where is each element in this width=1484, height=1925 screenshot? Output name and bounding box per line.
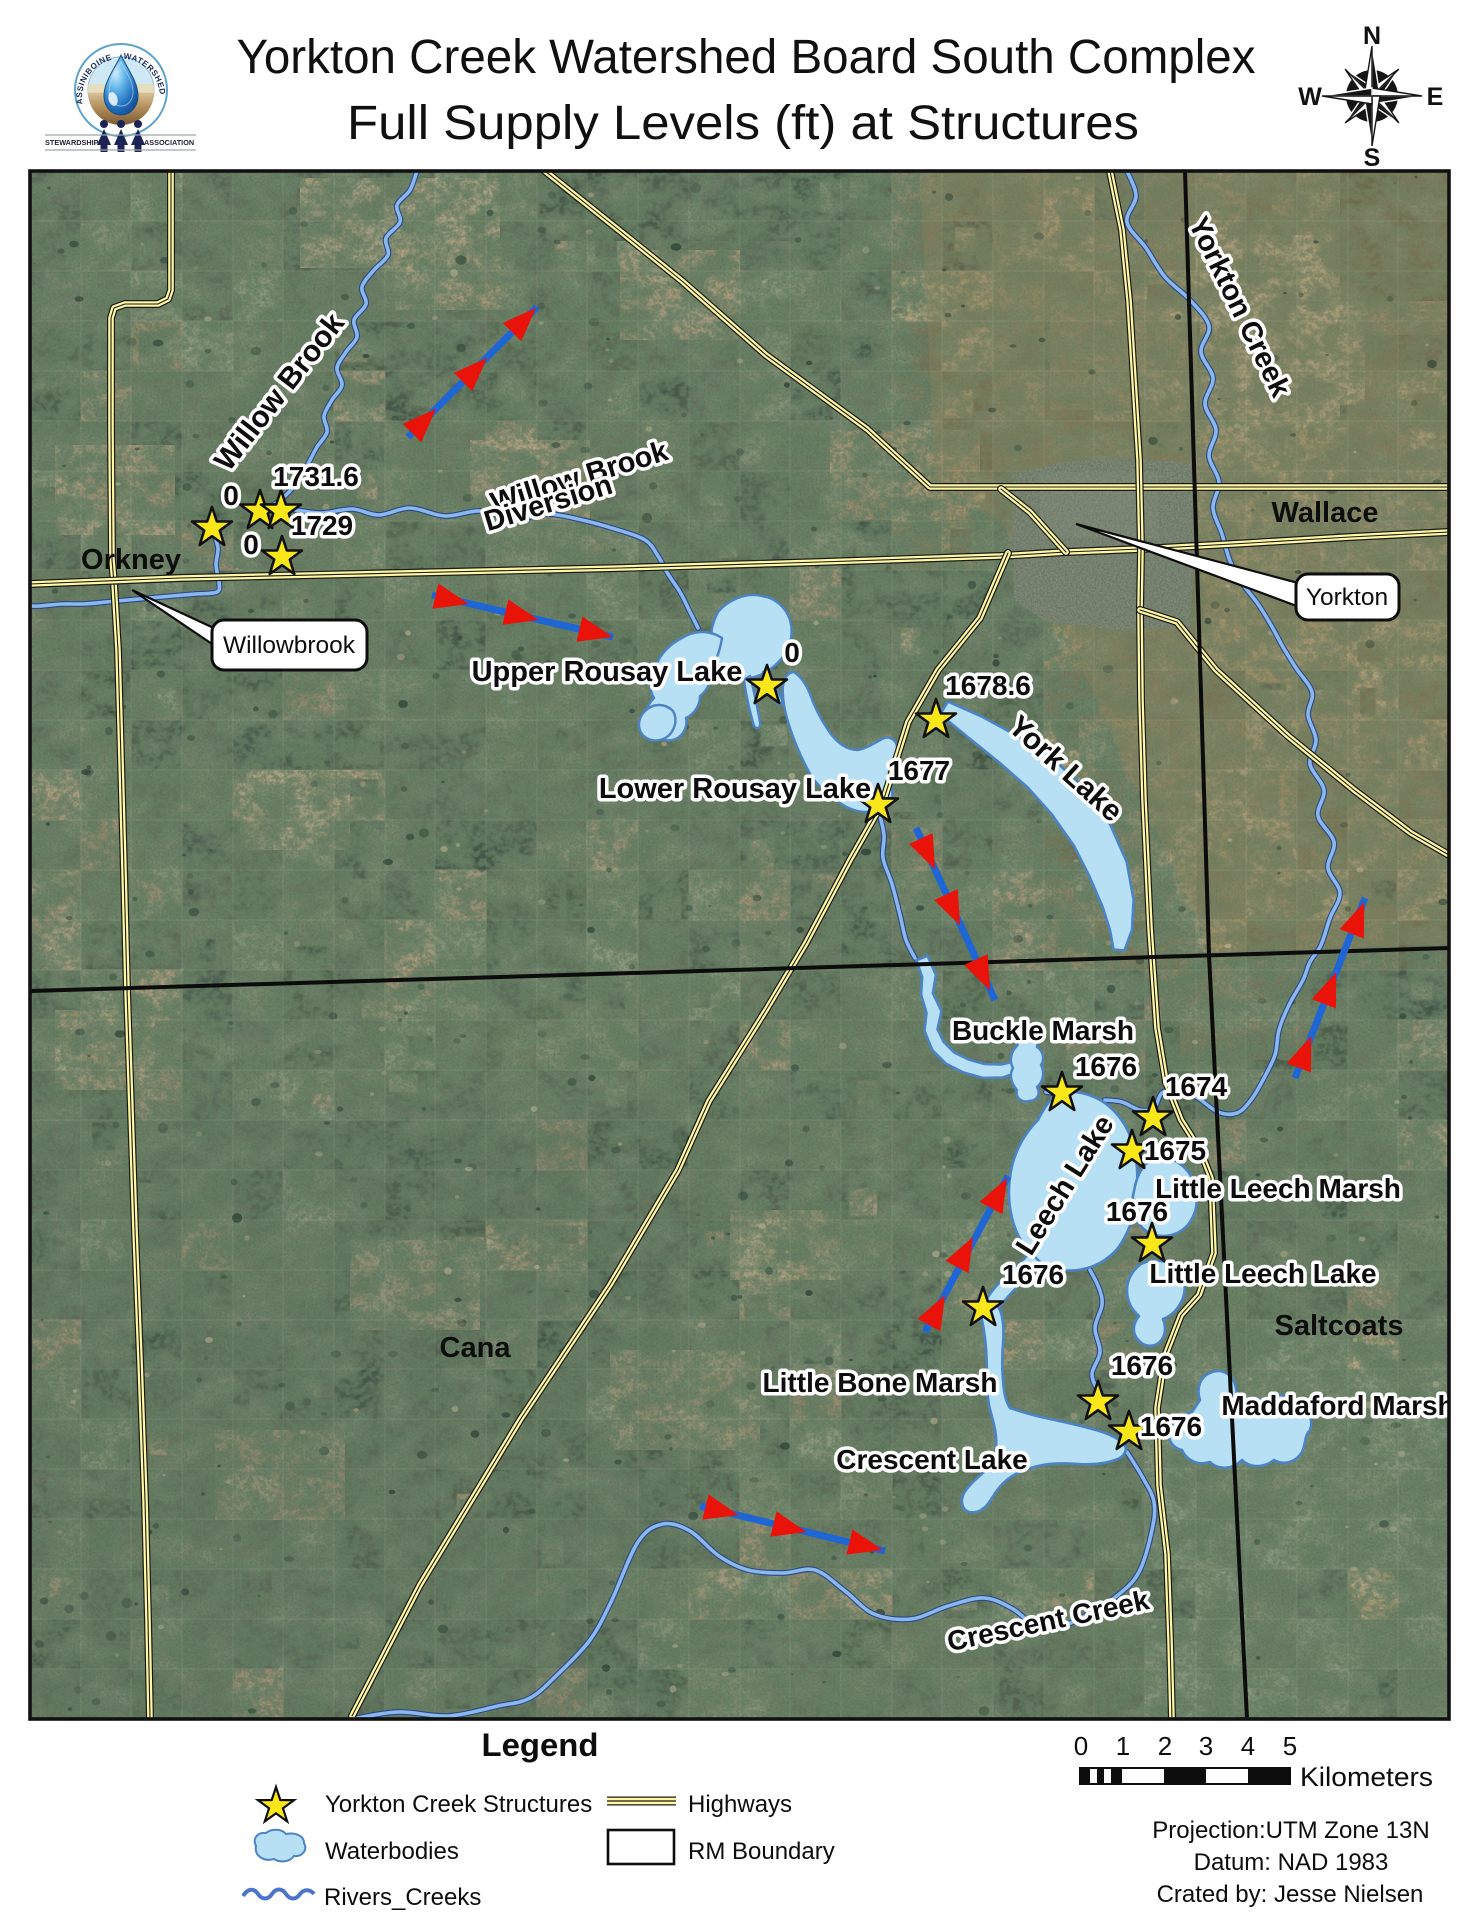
- svg-text:Wallace: Wallace: [1272, 497, 1379, 529]
- svg-text:Yorkton: Yorkton: [1306, 584, 1388, 611]
- svg-text:1676: 1676: [1106, 1196, 1168, 1227]
- svg-text:1674: 1674: [1165, 1071, 1228, 1102]
- svg-text:0: 0: [1074, 1731, 1088, 1761]
- svg-text:1731.6: 1731.6: [273, 461, 359, 492]
- svg-text:1675: 1675: [1144, 1135, 1206, 1166]
- svg-text:Full Supply Levels (ft) at Str: Full Supply Levels (ft) at Structures: [347, 97, 1139, 150]
- svg-text:Buckle Marsh: Buckle Marsh: [952, 1015, 1134, 1046]
- svg-text:Cana: Cana: [440, 1332, 512, 1364]
- svg-text:3: 3: [1199, 1731, 1213, 1761]
- svg-text:1: 1: [1116, 1731, 1130, 1761]
- svg-text:Little Bone Marsh: Little Bone Marsh: [763, 1367, 998, 1398]
- svg-text:5: 5: [1283, 1731, 1297, 1761]
- svg-text:1677: 1677: [888, 755, 950, 786]
- svg-text:0: 0: [784, 637, 800, 668]
- svg-text:1676: 1676: [1111, 1350, 1173, 1381]
- svg-text:ASSOCIATION: ASSOCIATION: [144, 138, 194, 147]
- svg-text:1729: 1729: [291, 510, 353, 541]
- svg-text:RM Boundary: RM Boundary: [688, 1838, 835, 1865]
- svg-text:Highways: Highways: [688, 1791, 792, 1818]
- svg-text:W: W: [1298, 83, 1322, 111]
- svg-text:Maddaford Marsh: Maddaford Marsh: [1221, 1390, 1454, 1421]
- svg-text:Kilometers: Kilometers: [1300, 1762, 1433, 1792]
- svg-text:0: 0: [243, 529, 259, 560]
- svg-text:Saltcoats: Saltcoats: [1275, 1310, 1404, 1342]
- svg-text:Little Leech Marsh: Little Leech Marsh: [1155, 1173, 1401, 1204]
- svg-text:Crescent Lake: Crescent Lake: [836, 1444, 1027, 1475]
- svg-text:0: 0: [223, 480, 239, 511]
- svg-text:1676: 1676: [1075, 1051, 1137, 1082]
- svg-text:Upper Rousay Lake: Upper Rousay Lake: [472, 656, 743, 688]
- svg-text:1678.6: 1678.6: [945, 670, 1031, 701]
- svg-text:2: 2: [1158, 1731, 1172, 1761]
- svg-text:Rivers_Creeks: Rivers_Creeks: [324, 1884, 481, 1911]
- svg-text:1676: 1676: [1002, 1259, 1064, 1290]
- svg-text:Datum: NAD 1983: Datum: NAD 1983: [1194, 1849, 1389, 1876]
- svg-text:Yorkton Creek Structures: Yorkton Creek Structures: [325, 1791, 592, 1818]
- svg-text:Willowbrook: Willowbrook: [223, 632, 356, 659]
- svg-text:Lower Rousay Lake: Lower Rousay Lake: [599, 773, 871, 805]
- svg-text:N: N: [1363, 22, 1381, 50]
- svg-text:Projection:UTM Zone 13N: Projection:UTM Zone 13N: [1152, 1817, 1429, 1844]
- svg-text:Legend: Legend: [482, 1727, 599, 1763]
- svg-text:S: S: [1364, 144, 1381, 172]
- svg-text:Yorkton Creek Watershed Board: Yorkton Creek Watershed Board South Comp…: [237, 31, 1256, 84]
- svg-text:Waterbodies: Waterbodies: [325, 1838, 459, 1865]
- svg-text:1676: 1676: [1140, 1411, 1202, 1442]
- svg-text:Orkney: Orkney: [81, 544, 181, 576]
- svg-text:4: 4: [1241, 1731, 1255, 1761]
- svg-text:E: E: [1427, 83, 1444, 111]
- svg-text:STEWARDSHIP: STEWARDSHIP: [45, 138, 99, 147]
- svg-text:Little Leech Lake: Little Leech Lake: [1149, 1258, 1376, 1289]
- svg-text:Crated by: Jesse Nielsen: Crated by: Jesse Nielsen: [1157, 1881, 1424, 1908]
